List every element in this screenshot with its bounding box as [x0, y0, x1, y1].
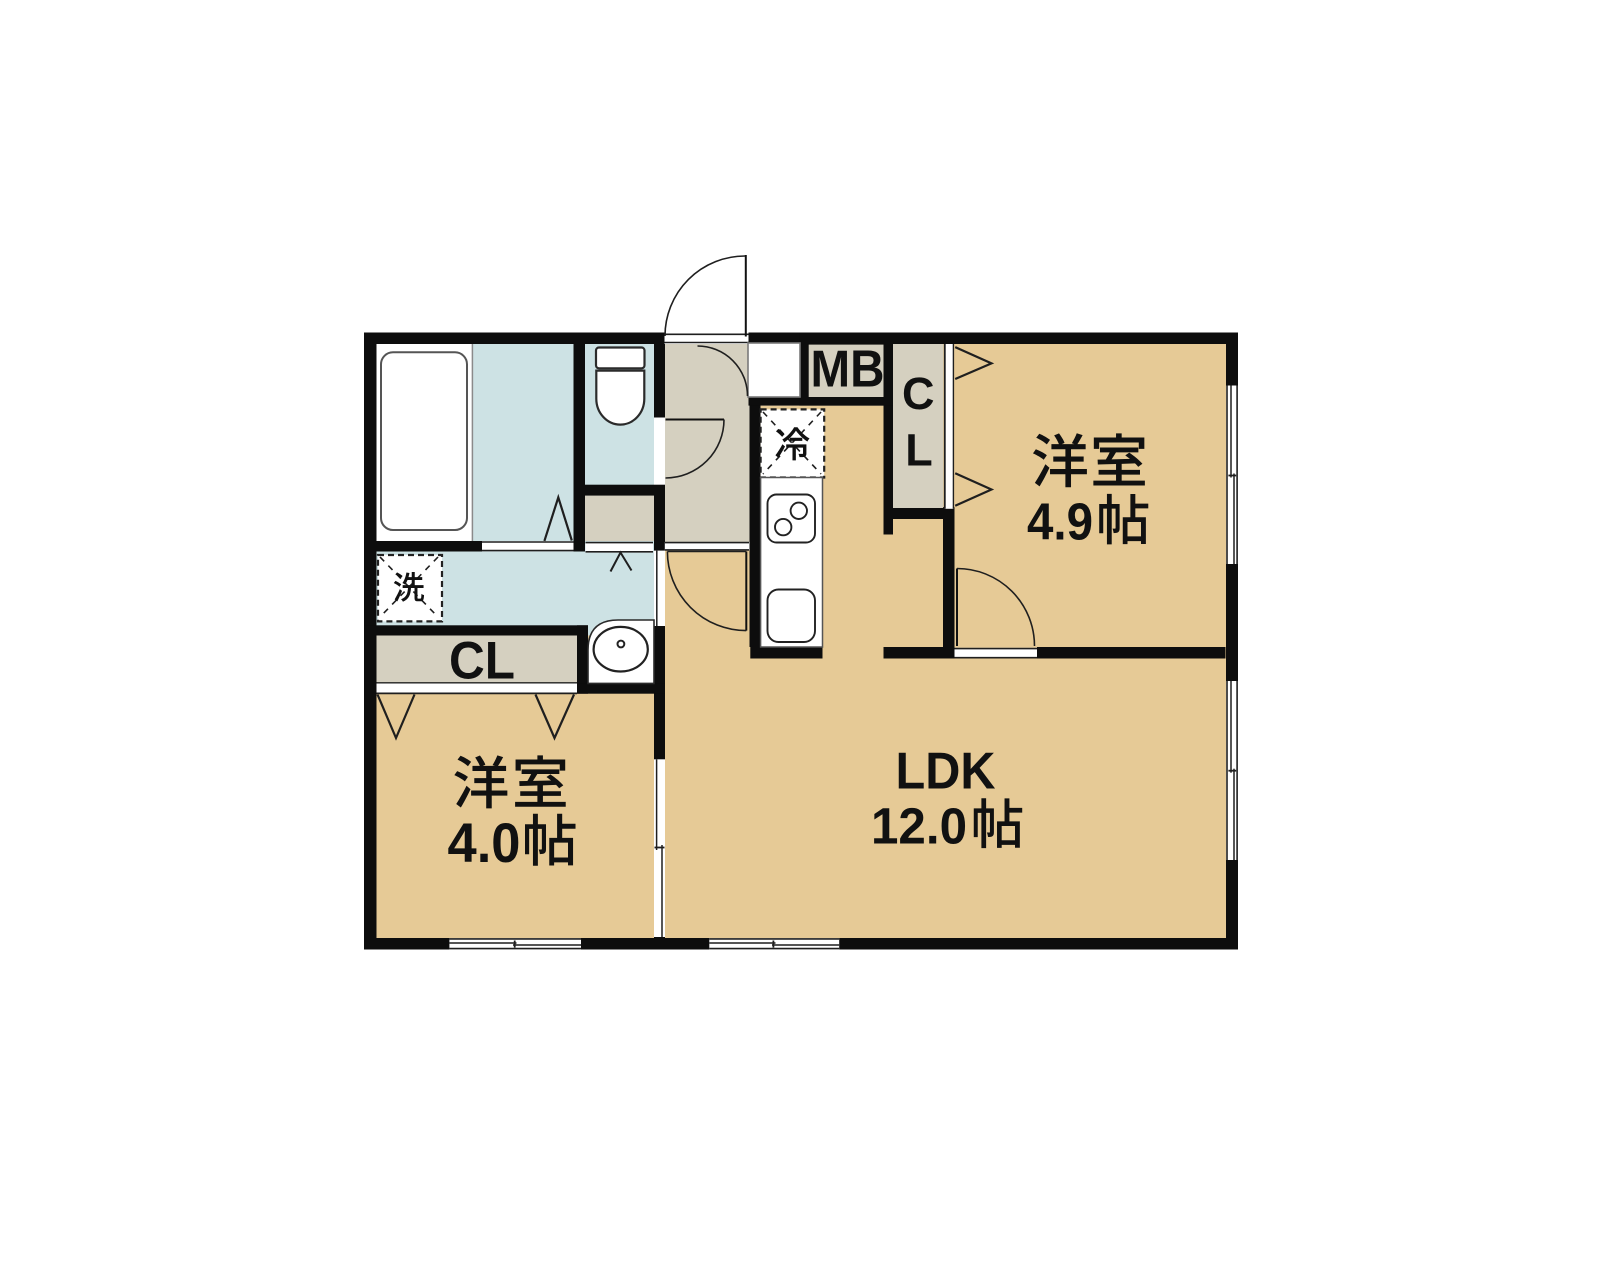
svg-text:MB: MB	[811, 341, 885, 399]
svg-text:CL: CL	[449, 631, 515, 690]
svg-text:12.0: 12.0	[871, 798, 967, 855]
svg-text:4.9: 4.9	[1027, 493, 1093, 551]
svg-text:4.0: 4.0	[448, 811, 521, 874]
svg-text:L: L	[905, 425, 933, 476]
svg-text:LDK: LDK	[896, 742, 996, 800]
svg-text:C: C	[902, 368, 935, 419]
